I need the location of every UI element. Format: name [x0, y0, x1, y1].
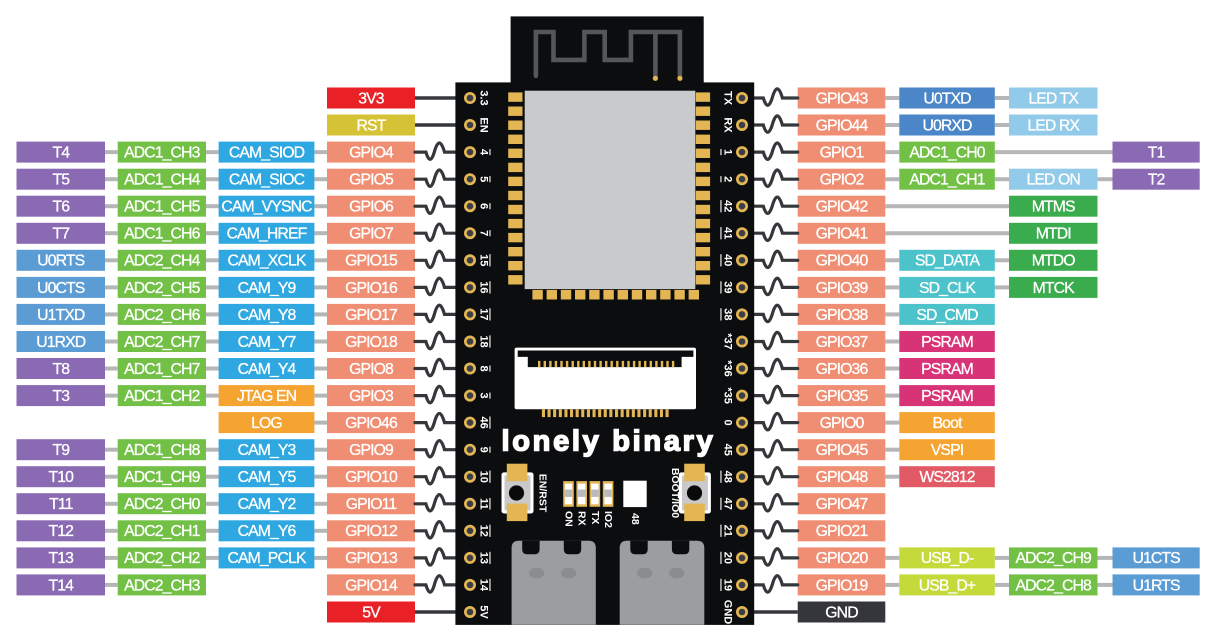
svg-text:MTDO: MTDO — [1032, 253, 1076, 270]
svg-text:ADC2_CH9: ADC2_CH9 — [1016, 550, 1092, 567]
svg-text:Boot: Boot — [933, 415, 963, 432]
svg-text:41: 41 — [722, 227, 734, 239]
svg-text:GPIO7: GPIO7 — [349, 226, 393, 243]
svg-text:JTAG EN: JTAG EN — [237, 388, 297, 405]
svg-text:16: 16 — [478, 281, 490, 293]
svg-text:ADC1_CH1: ADC1_CH1 — [909, 172, 985, 189]
svg-text:T11: T11 — [49, 496, 73, 513]
svg-text:GPIO47: GPIO47 — [816, 496, 868, 513]
svg-text:GPIO4: GPIO4 — [349, 145, 394, 162]
svg-text:GND: GND — [722, 600, 734, 625]
svg-text:SD_DATA: SD_DATA — [915, 253, 981, 270]
svg-text:6: 6 — [478, 203, 490, 209]
svg-text:GPIO15: GPIO15 — [345, 253, 398, 270]
svg-text:TX: TX — [722, 91, 734, 106]
svg-text:SD_CMD: SD_CMD — [916, 307, 978, 324]
svg-text:CAM_Y3: CAM_Y3 — [238, 442, 297, 459]
svg-text:ADC1_CH7: ADC1_CH7 — [124, 361, 199, 378]
svg-text:ADC2_CH6: ADC2_CH6 — [124, 307, 200, 324]
svg-text:U0CTS: U0CTS — [37, 280, 85, 297]
svg-text:T8: T8 — [52, 361, 70, 378]
svg-text:T9: T9 — [52, 442, 70, 459]
svg-text:GPIO16: GPIO16 — [345, 280, 398, 297]
svg-text:*37: *37 — [722, 333, 734, 350]
svg-text:GPIO14: GPIO14 — [345, 577, 398, 594]
svg-text:CAM_Y8: CAM_Y8 — [238, 307, 297, 324]
svg-text:GPIO39: GPIO39 — [816, 280, 869, 297]
svg-text:T2: T2 — [1148, 172, 1165, 189]
svg-text:ADC1_CH4: ADC1_CH4 — [124, 172, 200, 189]
svg-text:15: 15 — [478, 254, 490, 266]
svg-text:4: 4 — [478, 149, 490, 156]
svg-text:13: 13 — [478, 552, 490, 564]
svg-text:ADC1_CH5: ADC1_CH5 — [124, 199, 200, 216]
svg-text:T10: T10 — [49, 469, 75, 486]
svg-text:USB_D-: USB_D- — [921, 550, 974, 567]
svg-text:GPIO8: GPIO8 — [349, 361, 394, 378]
svg-text:CAM_SIOC: CAM_SIOC — [229, 172, 305, 189]
svg-text:46: 46 — [478, 416, 490, 428]
svg-text:*36: *36 — [722, 360, 734, 377]
svg-text:RST: RST — [357, 117, 387, 134]
svg-text:ADC1_CH9: ADC1_CH9 — [124, 469, 200, 486]
svg-text:MTCK: MTCK — [1033, 280, 1076, 297]
svg-text:CAM_Y2: CAM_Y2 — [238, 496, 296, 513]
svg-text:GPIO48: GPIO48 — [816, 469, 869, 486]
svg-text:PSRAM: PSRAM — [921, 388, 973, 405]
svg-text:9: 9 — [478, 447, 490, 453]
svg-text:GPIO44: GPIO44 — [816, 117, 869, 134]
svg-text:ADC1_CH0: ADC1_CH0 — [909, 145, 985, 162]
svg-text:ADC2_CH1: ADC2_CH1 — [124, 523, 200, 540]
svg-text:ADC1_CH3: ADC1_CH3 — [124, 145, 200, 162]
svg-text:SD_CLK: SD_CLK — [919, 280, 976, 297]
svg-text:GPIO41: GPIO41 — [816, 226, 869, 243]
svg-text:USB_D+: USB_D+ — [919, 577, 976, 594]
svg-text:U1TXD: U1TXD — [37, 307, 85, 324]
svg-text:GPIO0: GPIO0 — [820, 415, 865, 432]
svg-text:LOG: LOG — [251, 415, 282, 432]
svg-text:IO2: IO2 — [602, 511, 614, 528]
svg-text:8: 8 — [478, 365, 490, 371]
svg-text:ON: ON — [563, 511, 575, 527]
svg-text:17: 17 — [478, 308, 490, 320]
svg-text:lonely binary: lonely binary — [502, 426, 716, 458]
svg-text:47: 47 — [722, 498, 734, 510]
svg-text:ADC1_CH8: ADC1_CH8 — [124, 442, 200, 459]
svg-text:CAM_XCLK: CAM_XCLK — [228, 253, 307, 270]
svg-text:3.3: 3.3 — [478, 90, 490, 105]
svg-text:CAM_Y4: CAM_Y4 — [238, 361, 297, 378]
svg-text:BOOT/IO0: BOOT/IO0 — [669, 468, 681, 518]
svg-text:21: 21 — [722, 525, 734, 537]
svg-text:18: 18 — [478, 335, 490, 347]
svg-text:10: 10 — [478, 471, 490, 483]
svg-text:U0RXD: U0RXD — [922, 117, 972, 134]
svg-text:T4: T4 — [52, 145, 70, 162]
svg-text:GPIO38: GPIO38 — [816, 307, 869, 324]
svg-text:GPIO36: GPIO36 — [816, 361, 869, 378]
svg-text:ADC2_CH0: ADC2_CH0 — [124, 496, 200, 513]
svg-text:3: 3 — [478, 393, 490, 399]
svg-text:PSRAM: PSRAM — [921, 334, 973, 351]
svg-text:5V: 5V — [478, 605, 490, 619]
svg-text:CAM_HREF: CAM_HREF — [227, 226, 308, 243]
svg-text:MTDI: MTDI — [1036, 226, 1071, 243]
svg-text:GPIO13: GPIO13 — [345, 550, 398, 567]
svg-text:PSRAM: PSRAM — [921, 361, 973, 378]
svg-text:48: 48 — [722, 471, 734, 483]
svg-text:11: 11 — [478, 498, 490, 510]
svg-text:0: 0 — [722, 420, 734, 426]
svg-text:GPIO9: GPIO9 — [349, 442, 394, 459]
svg-text:7: 7 — [478, 230, 490, 236]
svg-text:EN/RST: EN/RST — [537, 474, 549, 513]
svg-text:38: 38 — [722, 308, 734, 320]
svg-text:T6: T6 — [52, 199, 70, 216]
svg-text:GPIO17: GPIO17 — [345, 307, 397, 324]
svg-text:WS2812: WS2812 — [919, 469, 974, 486]
svg-text:MTMS: MTMS — [1032, 199, 1075, 216]
svg-text:ADC2_CH2: ADC2_CH2 — [124, 550, 199, 567]
svg-text:48: 48 — [629, 513, 641, 525]
svg-text:ADC2_CH7: ADC2_CH7 — [124, 334, 199, 351]
svg-text:T13: T13 — [49, 550, 75, 567]
svg-text:ADC1_CH2: ADC1_CH2 — [124, 388, 199, 405]
svg-text:ADC2_CH8: ADC2_CH8 — [1016, 577, 1092, 594]
svg-text:T7: T7 — [52, 226, 69, 243]
svg-text:45: 45 — [722, 444, 734, 456]
svg-text:RX: RX — [722, 117, 734, 133]
svg-text:42: 42 — [722, 200, 734, 212]
svg-text:2: 2 — [722, 176, 734, 182]
svg-text:T1: T1 — [1148, 145, 1166, 162]
svg-text:5V: 5V — [362, 604, 381, 621]
svg-text:14: 14 — [478, 579, 490, 592]
svg-text:GPIO37: GPIO37 — [816, 334, 868, 351]
svg-text:GPIO35: GPIO35 — [816, 388, 869, 405]
svg-text:GPIO21: GPIO21 — [816, 523, 869, 540]
svg-text:ADC2_CH4: ADC2_CH4 — [124, 253, 200, 270]
svg-text:*35: *35 — [722, 387, 734, 404]
svg-text:12: 12 — [478, 525, 490, 537]
svg-text:EN: EN — [478, 117, 490, 132]
svg-text:T3: T3 — [52, 388, 70, 405]
svg-text:GPIO18: GPIO18 — [345, 334, 398, 351]
svg-text:GPIO43: GPIO43 — [816, 90, 869, 107]
svg-text:40: 40 — [722, 254, 734, 266]
svg-text:CAM_Y9: CAM_Y9 — [238, 280, 297, 297]
svg-text:GPIO10: GPIO10 — [345, 469, 398, 486]
svg-text:GPIO20: GPIO20 — [816, 550, 869, 567]
svg-text:GPIO40: GPIO40 — [816, 253, 869, 270]
svg-text:T14: T14 — [49, 577, 75, 594]
svg-text:U1RTS: U1RTS — [1133, 577, 1180, 594]
svg-text:GPIO2: GPIO2 — [820, 172, 864, 189]
svg-text:20: 20 — [722, 552, 734, 564]
svg-text:CAM_VYSNC: CAM_VYSNC — [221, 199, 312, 216]
svg-text:GPIO42: GPIO42 — [816, 199, 868, 216]
svg-text:GPIO19: GPIO19 — [816, 577, 869, 594]
svg-text:GPIO3: GPIO3 — [349, 388, 394, 405]
svg-text:CAM_SIOD: CAM_SIOD — [229, 145, 305, 162]
svg-text:GPIO12: GPIO12 — [345, 523, 397, 540]
svg-text:GPIO6: GPIO6 — [349, 199, 394, 216]
svg-text:CAM_PCLK: CAM_PCLK — [228, 550, 307, 567]
svg-text:GPIO11: GPIO11 — [346, 496, 398, 513]
svg-text:CAM_Y7: CAM_Y7 — [238, 334, 296, 351]
svg-text:LED ON: LED ON — [1026, 172, 1080, 189]
svg-text:39: 39 — [722, 281, 734, 293]
svg-text:ADC1_CH6: ADC1_CH6 — [124, 226, 200, 243]
svg-text:CAM_Y5: CAM_Y5 — [238, 469, 297, 486]
svg-text:19: 19 — [722, 579, 734, 591]
svg-text:T12: T12 — [49, 523, 74, 540]
svg-text:GND: GND — [825, 604, 858, 621]
svg-text:LED RX: LED RX — [1027, 117, 1080, 134]
svg-text:U1CTS: U1CTS — [1132, 550, 1180, 567]
svg-text:ADC2_CH5: ADC2_CH5 — [124, 280, 200, 297]
svg-text:GPIO5: GPIO5 — [349, 172, 394, 189]
svg-text:RX: RX — [576, 511, 588, 526]
svg-text:LED TX: LED TX — [1028, 90, 1079, 107]
svg-text:VSPI: VSPI — [931, 442, 963, 459]
svg-text:GPIO1: GPIO1 — [820, 145, 865, 162]
svg-text:1: 1 — [722, 149, 734, 155]
svg-text:GPIO45: GPIO45 — [816, 442, 869, 459]
svg-text:T5: T5 — [52, 172, 70, 189]
svg-text:CAM_Y6: CAM_Y6 — [238, 523, 297, 540]
svg-text:TX: TX — [589, 511, 601, 524]
svg-text:3V3: 3V3 — [358, 90, 385, 107]
svg-text:U0RTS: U0RTS — [37, 253, 84, 270]
svg-text:ADC2_CH3: ADC2_CH3 — [124, 577, 200, 594]
svg-text:5: 5 — [478, 176, 490, 182]
svg-text:GPIO46: GPIO46 — [345, 415, 398, 432]
svg-text:U0TXD: U0TXD — [923, 90, 971, 107]
svg-text:U1RXD: U1RXD — [36, 334, 86, 351]
